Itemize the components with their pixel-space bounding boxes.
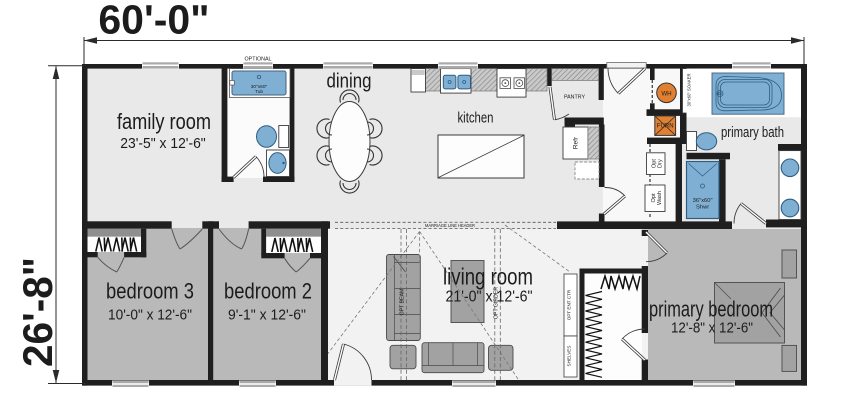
svg-text:living room: living room	[443, 264, 533, 290]
svg-text:Tub: Tub	[255, 89, 263, 95]
svg-text:OPT ENT CTR: OPT ENT CTR	[567, 289, 572, 320]
svg-text:kitchen: kitchen	[458, 109, 494, 126]
svg-text:primary bedroom: primary bedroom	[649, 297, 773, 322]
svg-text:30"x60" SOAKER: 30"x60" SOAKER	[687, 74, 692, 107]
svg-text:12'-8" x 12'-6": 12'-8" x 12'-6"	[671, 321, 753, 337]
svg-text:bedroom 3: bedroom 3	[106, 279, 194, 304]
svg-text:10'-0" x 12'-6": 10'-0" x 12'-6"	[108, 308, 192, 324]
svg-text:9'-1" x 12'-6": 9'-1" x 12'-6"	[228, 308, 306, 324]
svg-text:26'-8": 26'-8"	[14, 257, 61, 367]
svg-text:Shwr: Shwr	[696, 205, 709, 211]
svg-text:SHELVES: SHELVES	[567, 346, 572, 367]
svg-text:FURN: FURN	[657, 124, 674, 130]
svg-text:family room: family room	[117, 109, 211, 134]
svg-text:Refr: Refr	[573, 136, 580, 149]
svg-text:60'-0": 60'-0"	[98, 0, 209, 43]
svg-text:OptDry: OptDry	[652, 159, 664, 168]
svg-text:bedroom 2: bedroom 2	[224, 279, 312, 304]
svg-text:primary bath: primary bath	[721, 124, 784, 141]
svg-text:PANTRY: PANTRY	[564, 95, 585, 101]
svg-text:OPT GIRDER: OPT GIRDER	[494, 287, 500, 319]
svg-text:36"x60": 36"x60"	[693, 198, 713, 204]
svg-text:30"x60": 30"x60"	[251, 84, 268, 90]
svg-text:OPTIONAL: OPTIONAL	[245, 57, 272, 63]
svg-text:MARRIAGE LINE HEADER: MARRIAGE LINE HEADER	[425, 223, 476, 228]
svg-text:WH: WH	[661, 90, 671, 97]
svg-text:21'-0" x 12'-6": 21'-0" x 12'-6"	[446, 289, 533, 306]
svg-text:23'-5" x 12'-6": 23'-5" x 12'-6"	[120, 135, 206, 152]
svg-text:OPT BEAM: OPT BEAM	[400, 289, 406, 316]
svg-text:dining: dining	[327, 70, 372, 93]
